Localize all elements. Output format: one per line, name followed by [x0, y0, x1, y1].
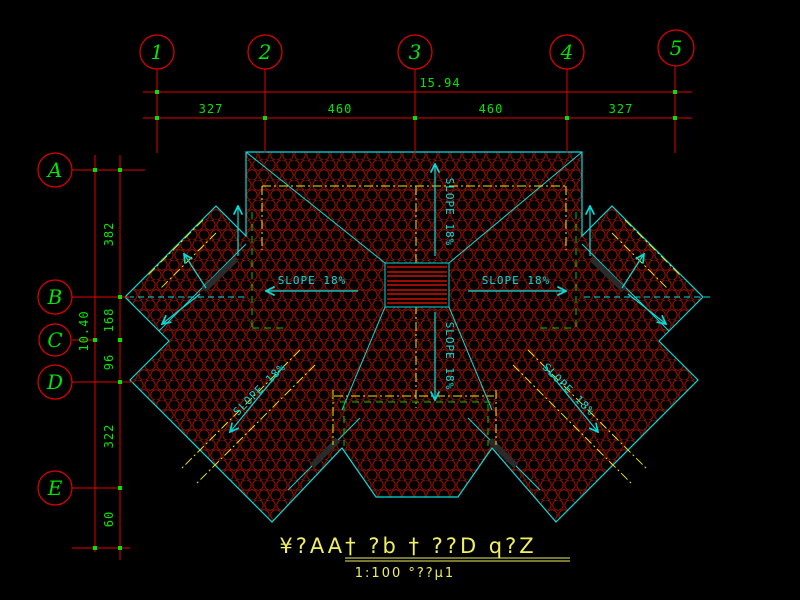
grid-bubble-C-label: C — [47, 328, 62, 352]
grid-bubble-5: 5 — [658, 30, 694, 66]
top-dimensions: 15.94 327 460 460 327 — [199, 76, 634, 116]
roof-plan-drawing: SLOPE 18% SLOPE 18% SLOPE 18% SLOPE 18% … — [0, 0, 800, 600]
grid-bubble-1-label: 1 — [151, 40, 164, 64]
grid-bubble-D-label: D — [46, 370, 63, 394]
dim-overall-width: 15.94 — [419, 76, 460, 90]
row-bubbles: A B C D E — [38, 153, 72, 505]
dim-row-5: 60 — [102, 511, 116, 527]
grid-bubble-B: B — [38, 280, 72, 314]
cad-viewport: SLOPE 18% SLOPE 18% SLOPE 18% SLOPE 18% … — [0, 0, 800, 600]
dim-seg-3: 460 — [479, 102, 504, 116]
grid-bubble-E-label: E — [47, 476, 63, 500]
slope-label-east: SLOPE 18% — [482, 274, 551, 287]
grid-bubble-A: A — [38, 153, 72, 187]
dim-row-2: 168 — [102, 308, 116, 333]
grid-bubble-2: 2 — [248, 35, 282, 69]
grid-bubble-D: D — [38, 365, 72, 399]
drawing-scale: 1:100 °??µ1 — [355, 566, 455, 581]
drawing-title: ¥?AA† ?b † ??D q?Z — [279, 534, 536, 558]
grid-bubble-B-label: B — [47, 285, 63, 309]
title-block: ¥?AA† ?b † ??D q?Z 1:100 °??µ1 — [279, 534, 570, 581]
grid-bubble-3: 3 — [398, 35, 432, 69]
slope-label-north: SLOPE 18% — [443, 178, 456, 247]
dim-row-4: 322 — [102, 424, 116, 449]
grid-bubble-C: C — [39, 324, 71, 356]
dim-row-3: 96 — [102, 354, 116, 370]
dim-row-1: 382 — [102, 222, 116, 247]
slope-label-south: SLOPE 18% — [443, 322, 456, 391]
slope-label-west: SLOPE 18% — [278, 274, 347, 287]
grid-bubble-E: E — [38, 471, 72, 505]
grid-bubble-A-label: A — [46, 158, 62, 182]
column-bubbles: 1 2 3 4 5 — [140, 30, 694, 69]
grid-bubble-2-label: 2 — [258, 40, 272, 64]
dim-seg-2: 460 — [328, 102, 353, 116]
grid-bubble-1: 1 — [140, 35, 174, 69]
grid-bubble-4-label: 4 — [560, 40, 574, 64]
left-dimensions: 382 168 96 322 60 10.40 — [77, 222, 116, 528]
roof-outline — [125, 152, 703, 522]
grid-bubble-5-label: 5 — [670, 36, 683, 60]
dim-seg-1: 327 — [199, 102, 224, 116]
grid-bubble-3-label: 3 — [409, 40, 422, 64]
grid-bubble-4: 4 — [550, 35, 584, 69]
central-hatch-square — [385, 263, 449, 307]
dim-seg-4: 327 — [609, 102, 634, 116]
dim-overall-height: 10.40 — [77, 310, 91, 351]
